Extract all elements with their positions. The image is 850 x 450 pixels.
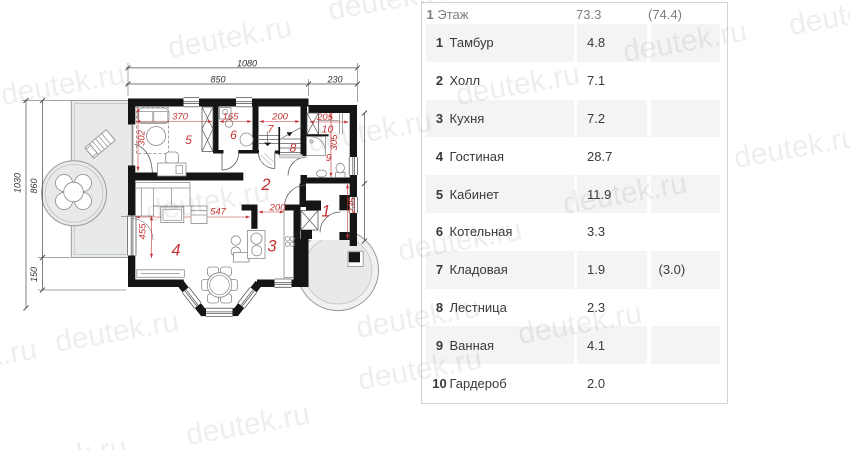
svg-text:9: 9 — [326, 152, 332, 164]
svg-text:6: 6 — [230, 128, 237, 142]
svg-text:860: 860 — [29, 178, 39, 193]
svg-text:200: 200 — [269, 203, 287, 214]
svg-text:3: 3 — [267, 238, 277, 256]
svg-text:4: 4 — [171, 242, 180, 260]
svg-text:165: 165 — [223, 112, 240, 123]
svg-text:455: 455 — [138, 223, 149, 240]
svg-text:230: 230 — [326, 75, 342, 85]
svg-text:547: 547 — [210, 207, 227, 218]
svg-text:200: 200 — [271, 112, 289, 123]
svg-text:850: 850 — [210, 75, 225, 85]
svg-text:1030: 1030 — [13, 173, 23, 193]
svg-text:8: 8 — [290, 141, 297, 155]
svg-text:302: 302 — [137, 129, 148, 146]
svg-text:305: 305 — [329, 134, 340, 151]
svg-text:5: 5 — [185, 133, 192, 147]
svg-text:370: 370 — [172, 112, 189, 123]
svg-text:2: 2 — [260, 176, 270, 194]
svg-text:235: 235 — [347, 197, 358, 215]
svg-text:7: 7 — [267, 124, 274, 136]
svg-text:150: 150 — [29, 267, 39, 282]
svg-text:1: 1 — [321, 203, 330, 221]
svg-text:10: 10 — [322, 123, 334, 135]
svg-text:1080: 1080 — [237, 59, 257, 69]
